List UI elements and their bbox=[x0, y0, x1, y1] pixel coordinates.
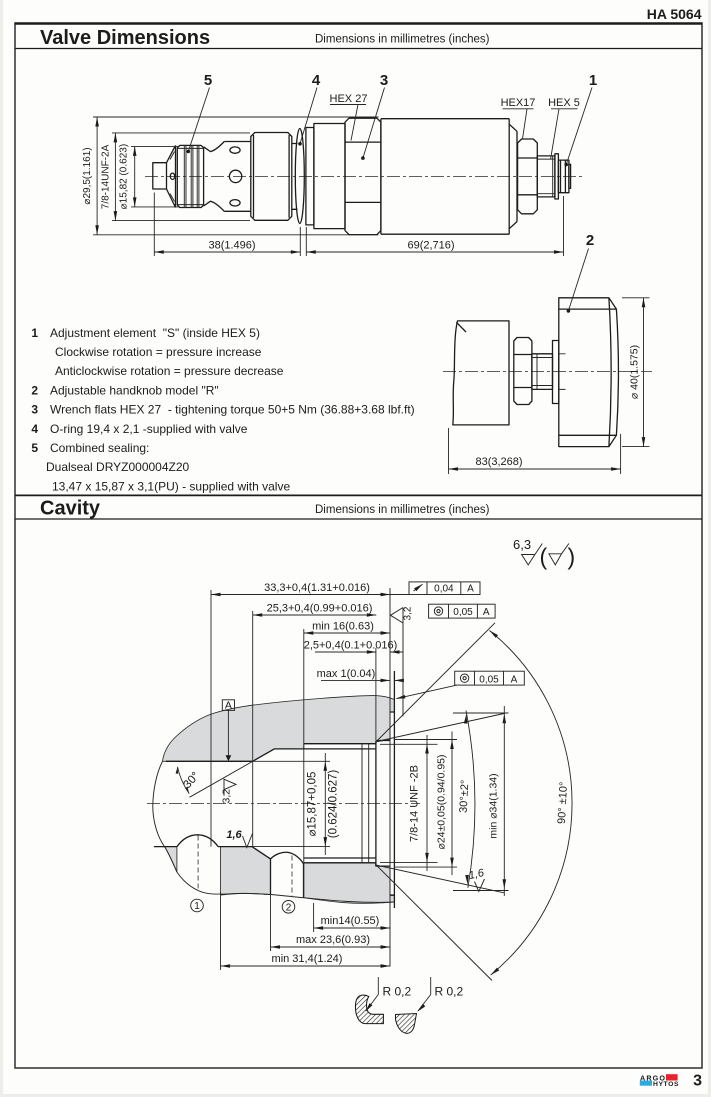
svg-text:HEX 5: HEX 5 bbox=[548, 97, 580, 109]
svg-text:Adjustment element "S" (insid: Adjustment element "S" (inside HEX 5) bbox=[50, 326, 260, 340]
svg-text:Cavity: Cavity bbox=[40, 498, 101, 520]
svg-text:Combined sealing:: Combined sealing: bbox=[50, 441, 149, 455]
svg-text:A: A bbox=[483, 607, 490, 618]
svg-text:0,05: 0,05 bbox=[453, 607, 473, 618]
svg-text:Wrench flats HEX 27 - tighten: Wrench flats HEX 27 - tightening torque … bbox=[50, 403, 415, 417]
svg-text:1: 1 bbox=[194, 901, 200, 912]
svg-text:R 0,2: R 0,2 bbox=[435, 985, 464, 999]
svg-text:): ) bbox=[568, 544, 576, 570]
svg-text:Dimensions in millimetres (inc: Dimensions in millimetres (inches) bbox=[315, 34, 490, 46]
svg-text:0,05: 0,05 bbox=[479, 674, 499, 685]
svg-text:2,5+0,4(0.1+0.016): 2,5+0,4(0.1+0.016) bbox=[304, 640, 398, 652]
svg-text:min14(0.55): min14(0.55) bbox=[321, 915, 380, 927]
svg-text:⌀15,82 (0.623): ⌀15,82 (0.623) bbox=[119, 144, 130, 210]
svg-text:⌀29,5(1.161): ⌀29,5(1.161) bbox=[82, 147, 93, 204]
svg-text:3: 3 bbox=[380, 72, 388, 89]
svg-text:1: 1 bbox=[589, 72, 597, 89]
svg-text:13,47 x 15,87 x 3,1(PU) - supp: 13,47 x 15,87 x 3,1(PU) - supplied with … bbox=[52, 479, 290, 493]
svg-text:3,2: 3,2 bbox=[403, 606, 414, 620]
svg-text:max 1(0.04): max 1(0.04) bbox=[317, 668, 376, 680]
svg-text:min 31,4(1.24): min 31,4(1.24) bbox=[272, 953, 343, 965]
svg-text:HYTOS: HYTOS bbox=[653, 1081, 679, 1088]
svg-text:⌀24±0,05(0.94/0.95): ⌀24±0,05(0.94/0.95) bbox=[436, 755, 448, 850]
svg-text:4: 4 bbox=[31, 422, 38, 436]
svg-text:5: 5 bbox=[31, 441, 38, 455]
svg-text:2: 2 bbox=[286, 903, 292, 914]
svg-text:1: 1 bbox=[31, 326, 38, 340]
svg-text:38(1.496): 38(1.496) bbox=[208, 240, 255, 252]
svg-text:Anticlockwise rotation = press: Anticlockwise rotation = pressure decrea… bbox=[55, 364, 284, 378]
svg-text:R 0,2: R 0,2 bbox=[383, 985, 412, 999]
svg-text:min ⌀34(1.34): min ⌀34(1.34) bbox=[488, 773, 500, 838]
svg-text:⌀15,87+0,05: ⌀15,87+0,05 bbox=[307, 772, 319, 837]
svg-text:30°: 30° bbox=[181, 770, 202, 791]
svg-text:25,3+0,4(0.99+0.016): 25,3+0,4(0.99+0.016) bbox=[267, 603, 373, 615]
svg-text:Valve Dimensions: Valve Dimensions bbox=[40, 27, 210, 49]
svg-text:Dualseal DRYZ000004Z20: Dualseal DRYZ000004Z20 bbox=[46, 460, 190, 474]
svg-text:HA 5064: HA 5064 bbox=[647, 6, 702, 22]
svg-text:90° ±10°: 90° ±10° bbox=[556, 781, 570, 824]
svg-text:7/8-14 UNF -2B: 7/8-14 UNF -2B bbox=[409, 765, 421, 842]
svg-text:(0.624/0.627): (0.624/0.627) bbox=[328, 770, 340, 839]
svg-text:69(2,716): 69(2,716) bbox=[407, 240, 454, 252]
svg-text:Adjustable handknob model "R": Adjustable handknob model "R" bbox=[50, 383, 219, 397]
svg-text:30°±2°: 30°±2° bbox=[458, 779, 472, 813]
svg-text:A: A bbox=[511, 674, 518, 685]
svg-text:1,6: 1,6 bbox=[468, 867, 486, 882]
svg-text:6,3: 6,3 bbox=[513, 537, 531, 552]
svg-text:min 16(0.63): min 16(0.63) bbox=[312, 621, 374, 633]
svg-text:2: 2 bbox=[31, 383, 38, 397]
svg-text:O-ring 19,4 x 2,1 -supplied wi: O-ring 19,4 x 2,1 -supplied with valve bbox=[50, 422, 248, 436]
svg-text:1,6: 1,6 bbox=[226, 829, 242, 841]
svg-text:0,04: 0,04 bbox=[434, 584, 454, 595]
svg-text:3,2: 3,2 bbox=[221, 789, 233, 804]
svg-text:3: 3 bbox=[31, 403, 38, 417]
svg-text:Dimensions in millimetres (inc: Dimensions in millimetres (inches) bbox=[315, 504, 490, 516]
svg-text:(: ( bbox=[540, 544, 548, 570]
svg-text:7/8-14UNF-2A: 7/8-14UNF-2A bbox=[101, 144, 112, 209]
svg-text:Clockwise rotation = pressure: Clockwise rotation = pressure increase bbox=[55, 345, 262, 359]
svg-text:33,3+0,4(1.31+0.016): 33,3+0,4(1.31+0.016) bbox=[264, 582, 370, 594]
svg-text:3: 3 bbox=[693, 1073, 702, 1090]
svg-text:HEX17: HEX17 bbox=[501, 97, 536, 109]
svg-text:A: A bbox=[225, 700, 232, 712]
svg-text:⌀ 40(1.575): ⌀ 40(1.575) bbox=[629, 345, 641, 399]
svg-text:83(3,268): 83(3,268) bbox=[475, 456, 522, 468]
svg-text:4: 4 bbox=[312, 72, 321, 89]
svg-text:5: 5 bbox=[204, 72, 212, 89]
svg-text:max 23,6(0.93): max 23,6(0.93) bbox=[296, 934, 370, 946]
svg-text:HEX 27: HEX 27 bbox=[330, 93, 368, 105]
svg-text:2: 2 bbox=[586, 232, 594, 249]
svg-text:A: A bbox=[467, 584, 474, 595]
